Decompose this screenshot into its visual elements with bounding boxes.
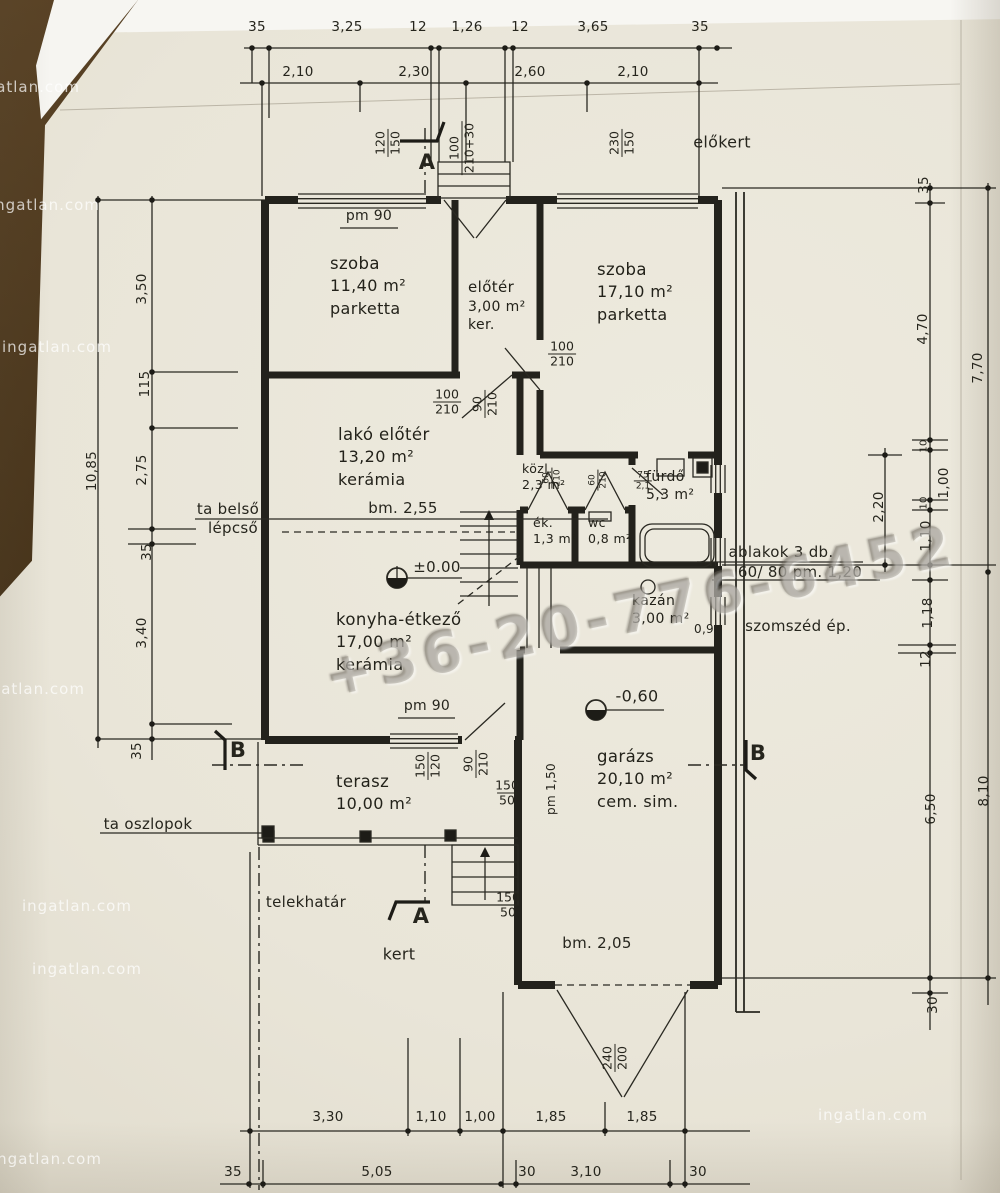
opening-100-210-30: 100210+30 — [448, 121, 477, 175]
dim-top: 3,65 — [577, 19, 608, 35]
bm205-label: bm. 2,05 — [562, 934, 631, 952]
opening-90-210-terrace: 90210 — [462, 750, 491, 778]
ta-belso-label-line2: lépcső — [208, 519, 258, 537]
opening-100-210-szoba2: 100210 — [548, 340, 576, 369]
kert-label: kert — [383, 945, 416, 964]
parapet-90-kitchen-label: pm 90 — [404, 698, 450, 714]
opening-240-200-garage: 240200 — [601, 1044, 630, 1072]
parapet-150-garage-label: pm 1,50 — [544, 763, 558, 815]
elokert-label: előkert — [693, 133, 751, 152]
telekhatar-label: telekhatár — [266, 893, 346, 911]
dim-right: 1,18 — [920, 597, 936, 628]
dim-right-small: 10 — [919, 439, 930, 452]
dim-right-total: 8,10 — [976, 775, 992, 806]
opening-100-210-szoba1: 100210 — [433, 388, 461, 417]
dim-top: 35 — [248, 19, 266, 35]
site-watermark: ingatlan.com — [32, 960, 142, 978]
dim-bottom2: 35 — [224, 1164, 242, 1180]
dim-top2: 2,10 — [282, 64, 313, 80]
opening-150-120: 150120 — [414, 752, 443, 780]
bm255-label: bm. 2,55 — [368, 499, 437, 517]
dim-left: 115 — [137, 371, 153, 398]
opening-230-150: 230150 — [608, 129, 637, 157]
dim-top: 1,26 — [451, 19, 482, 35]
section-a-top-label: A — [419, 150, 436, 174]
dim-bottom: 1,10 — [415, 1109, 446, 1125]
dim-top: 12 — [511, 19, 529, 35]
site-watermark: ingatlan.com — [0, 1150, 102, 1168]
dim-bottom: 1,00 — [464, 1109, 495, 1125]
exterior-steps-arrowhead — [480, 847, 490, 857]
dim-top2: 2,30 — [398, 64, 429, 80]
dim-right-small: 10 — [919, 496, 930, 509]
opening-150-50-steps: 15050 — [496, 891, 520, 920]
room-label-szoba-2: szoba 17,10 m² parketta — [597, 258, 673, 327]
room-label-szoba-1: szoba 11,40 m² parketta — [330, 252, 406, 321]
site-watermark: ingatlan.com — [2, 338, 112, 356]
paper-crease — [60, 84, 960, 110]
dim-right: 2,20 — [871, 491, 887, 522]
site-watermark: ingatlan.com — [0, 78, 80, 96]
section-b-right-label: B — [750, 741, 766, 765]
dim-right: 35 — [916, 176, 932, 194]
section-b-left-label: B — [230, 738, 246, 762]
dim-top: 3,25 — [331, 19, 362, 35]
opening-75-bath: 752,1 — [634, 470, 652, 491]
dim-left: 35 — [129, 742, 145, 760]
dim-bottom: 3,30 — [312, 1109, 343, 1125]
site-watermark: ingatlan.com — [22, 897, 132, 915]
dim-right: 12 — [918, 650, 934, 668]
opening-60-ek: 60210 — [541, 467, 562, 488]
ta-oszlopok-label: ta oszlopok — [104, 815, 193, 833]
room-label-ek: ék. 1,3 m² — [533, 515, 576, 546]
dim-right: 30 — [925, 996, 941, 1014]
floorplan-photo: szoba 11,40 m² parketta előtér 3,00 m² k… — [0, 0, 1000, 1193]
opening-60-wc: 60210 — [587, 469, 608, 490]
dim-top: 35 — [691, 19, 709, 35]
dim-bottom2: 5,05 — [361, 1164, 392, 1180]
stairs-main — [458, 512, 520, 606]
section-a-bottom-label: A — [413, 904, 430, 928]
dim-right: 1,00 — [936, 467, 952, 498]
parapet-90-top-label: pm 90 — [346, 208, 392, 224]
dim-left: 35 — [139, 543, 155, 561]
site-watermark: ingatlan.com — [818, 1106, 928, 1124]
dim-bottom2: 3,10 — [570, 1164, 601, 1180]
ta-belso-label-line1: ta belső — [197, 500, 259, 518]
opening-120-150: 120150 — [374, 129, 403, 157]
dim-top2: 2,60 — [514, 64, 545, 80]
level-zero-label: ±0.00 — [413, 558, 460, 576]
szomszed-label: szomszéd ép. — [745, 617, 851, 635]
opening-150-50-terrace: 15050 — [495, 779, 519, 808]
room-label-lako-eloter: lakó előtér 13,20 m² kerámia — [338, 423, 430, 492]
site-watermark: ingatlan.com — [0, 680, 85, 698]
opening-90-210-hall: 90210 — [471, 390, 500, 418]
level-minus060-label: -0,60 — [616, 687, 659, 706]
room-label-terasz: terasz 10,00 m² — [336, 770, 412, 816]
dim-left-total: 10,85 — [84, 451, 100, 491]
room-label-wc: wc 0,8 m² — [588, 515, 631, 546]
dim-right: 4,70 — [915, 313, 931, 344]
room-label-furdo: fürdő 5,3 m² — [646, 468, 694, 504]
dim-top: 12 — [409, 19, 427, 35]
dim-bottom: 1,85 — [535, 1109, 566, 1125]
dim-bottom2: 30 — [689, 1164, 707, 1180]
dim-bottom2: 30 — [518, 1164, 536, 1180]
dim-bottom: 1,85 — [626, 1109, 657, 1125]
dim-right-total: 7,70 — [970, 352, 986, 383]
site-watermark: ingatlan.com — [0, 196, 100, 214]
dim-left: 3,40 — [134, 617, 150, 648]
dim-left: 3,50 — [134, 273, 150, 304]
dim-top2: 2,10 — [617, 64, 648, 80]
dim-left: 2,75 — [134, 454, 150, 485]
dim-right: 6,50 — [923, 793, 939, 824]
room-label-eloter: előtér 3,00 m² ker. — [468, 278, 526, 334]
room-label-garazs: garázs 20,10 m² cem. sim. — [597, 745, 678, 814]
